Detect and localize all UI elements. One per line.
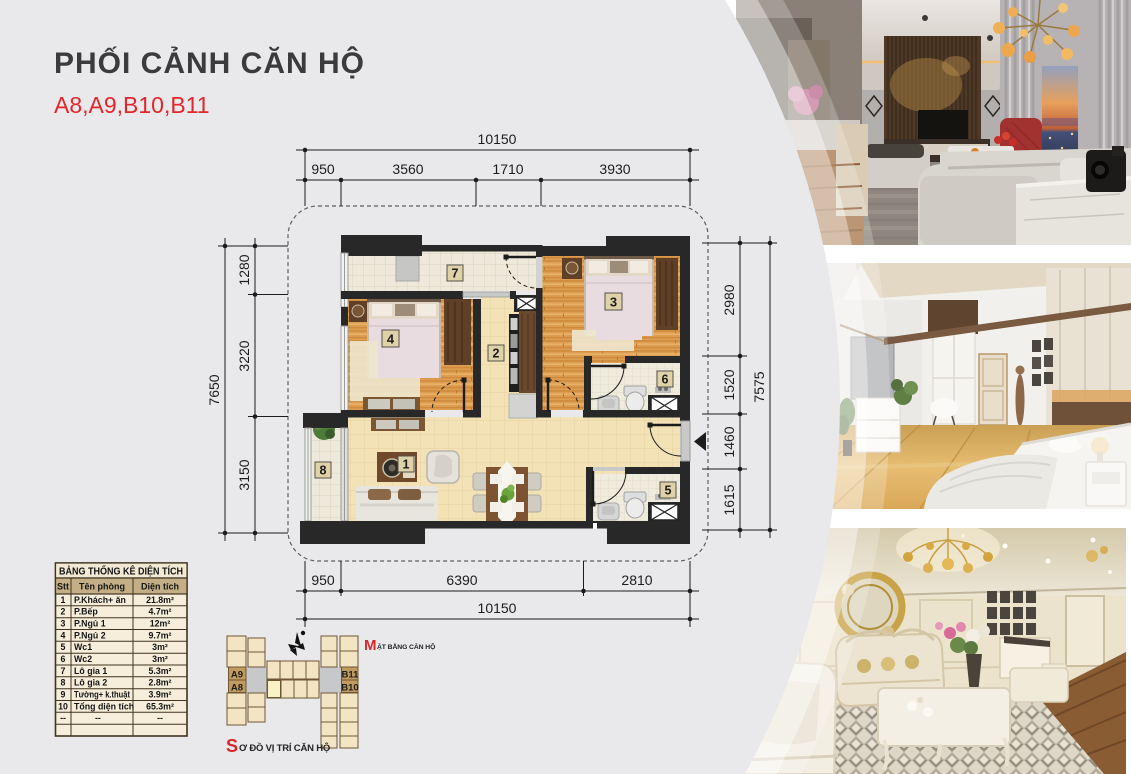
svg-text:1460: 1460 — [721, 426, 737, 457]
svg-text:A8,A9,B10,B11: A8,A9,B10,B11 — [54, 92, 210, 118]
svg-text:2: 2 — [493, 347, 500, 361]
svg-text:3m²: 3m² — [152, 654, 168, 664]
svg-text:7650: 7650 — [206, 374, 222, 405]
svg-text:12m²: 12m² — [150, 619, 171, 629]
svg-text:4.7m²: 4.7m² — [149, 607, 172, 617]
svg-text:3220: 3220 — [236, 340, 252, 371]
svg-text:Tổng diện tích: Tổng diện tích — [74, 701, 134, 711]
svg-text:P.Ngủ 1: P.Ngủ 1 — [74, 619, 106, 629]
svg-text:Tên phòng: Tên phòng — [79, 582, 125, 592]
svg-text:8: 8 — [61, 678, 66, 688]
svg-text:5: 5 — [61, 642, 66, 652]
svg-text:Wc2: Wc2 — [74, 654, 92, 664]
svg-text:3: 3 — [61, 619, 66, 629]
svg-text:Diện tích: Diện tích — [141, 582, 179, 592]
svg-text:2: 2 — [61, 607, 66, 617]
svg-text:1520: 1520 — [721, 369, 737, 400]
svg-text:--: -- — [60, 713, 66, 723]
svg-text:10150: 10150 — [478, 131, 517, 147]
svg-text:9: 9 — [61, 690, 66, 700]
svg-text:Lô gia 1: Lô gia 1 — [74, 666, 107, 676]
svg-text:6: 6 — [61, 654, 66, 664]
svg-text:Ơ ĐỒ VỊ TRÍ CĂN HỘ: Ơ ĐỒ VỊ TRÍ CĂN HỘ — [239, 742, 330, 754]
svg-text:7575: 7575 — [751, 371, 767, 402]
svg-text:10150: 10150 — [478, 600, 517, 616]
svg-text:--: -- — [95, 713, 101, 723]
svg-text:8: 8 — [320, 464, 327, 478]
svg-text:2810: 2810 — [621, 572, 652, 588]
svg-text:1: 1 — [61, 595, 66, 605]
svg-text:1280: 1280 — [236, 254, 252, 285]
svg-text:2.8m²: 2.8m² — [149, 678, 172, 688]
svg-text:P.Ngủ 2: P.Ngủ 2 — [74, 630, 106, 640]
svg-text:1615: 1615 — [721, 484, 737, 515]
svg-text:S: S — [226, 736, 238, 756]
svg-text:Lô gia 2: Lô gia 2 — [74, 678, 107, 688]
svg-text:BẢNG THỐNG KÊ DIỆN TÍCH: BẢNG THỐNG KÊ DIỆN TÍCH — [59, 564, 183, 578]
svg-text:3930: 3930 — [599, 161, 630, 177]
svg-text:2980: 2980 — [721, 284, 737, 315]
svg-text:Wc1: Wc1 — [74, 642, 92, 652]
svg-text:P.Khách+ ăn: P.Khách+ ăn — [74, 595, 126, 605]
svg-text:6390: 6390 — [446, 572, 477, 588]
svg-text:Tường+ k.thuật: Tường+ k.thuật — [74, 690, 130, 700]
svg-text:3: 3 — [610, 295, 617, 310]
svg-text:A8: A8 — [231, 683, 243, 694]
svg-text:--: -- — [157, 713, 163, 723]
svg-text:3.9m²: 3.9m² — [149, 690, 172, 700]
svg-text:ẶT BẰNG CĂN HỘ: ẶT BẰNG CĂN HỘ — [377, 642, 435, 651]
svg-text:10: 10 — [58, 701, 68, 711]
svg-text:PHỐI CẢNH CĂN HỘ: PHỐI CẢNH CĂN HỘ — [54, 46, 365, 80]
svg-text:A9: A9 — [231, 670, 243, 681]
svg-text:Stt: Stt — [57, 582, 69, 592]
svg-text:6: 6 — [662, 373, 669, 387]
svg-text:1710: 1710 — [492, 161, 523, 177]
svg-text:4: 4 — [387, 332, 395, 347]
svg-text:950: 950 — [311, 161, 335, 177]
svg-text:B10: B10 — [341, 683, 358, 694]
svg-text:5.3m²: 5.3m² — [149, 666, 172, 676]
svg-text:9.7m²: 9.7m² — [149, 630, 172, 640]
svg-text:M: M — [364, 637, 377, 654]
svg-text:950: 950 — [311, 572, 335, 588]
svg-text:3560: 3560 — [392, 161, 423, 177]
svg-text:21.8m²: 21.8m² — [146, 595, 174, 605]
svg-text:1: 1 — [403, 458, 410, 472]
svg-text:7: 7 — [61, 666, 66, 676]
svg-text:5: 5 — [665, 484, 672, 498]
svg-text:65.3m²: 65.3m² — [146, 701, 174, 711]
svg-text:3150: 3150 — [236, 459, 252, 490]
svg-text:P.Bếp: P.Bếp — [74, 607, 98, 617]
svg-text:B11: B11 — [342, 670, 360, 681]
svg-text:7: 7 — [452, 267, 459, 281]
svg-text:3m²: 3m² — [152, 642, 168, 652]
svg-text:4: 4 — [61, 630, 66, 640]
